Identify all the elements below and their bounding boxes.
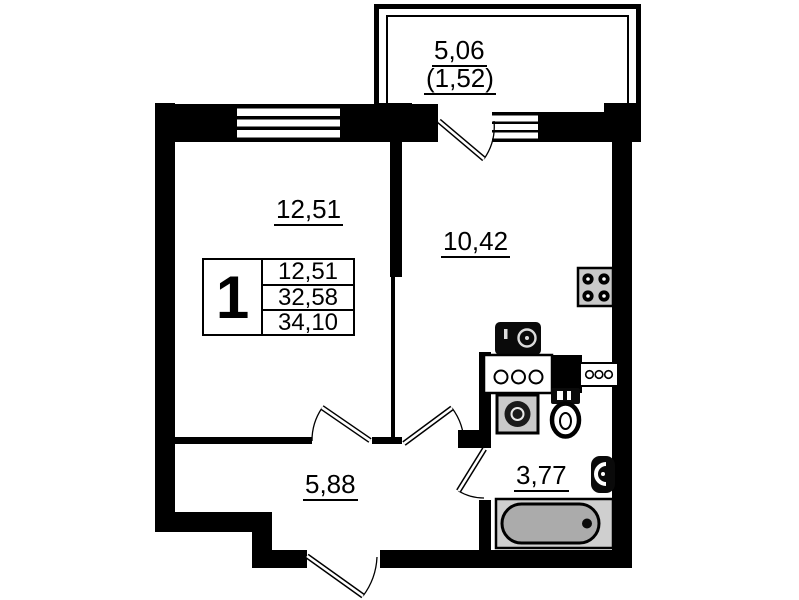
wall-hall-top-b [372, 437, 402, 444]
stove-icon [578, 268, 613, 306]
bathroom-area-label: 3,77 [514, 462, 569, 492]
kitchen-area-label: 10,42 [441, 228, 510, 258]
wall-bath-left-lower [479, 500, 491, 552]
kitchen-sink-icon [495, 322, 541, 355]
wall-left [155, 103, 175, 532]
table-row-usable-area: 32,58 [261, 284, 355, 311]
area-rows: 12,51 32,58 34,10 [261, 258, 355, 336]
door-leaf [322, 408, 370, 441]
wall-kitchen-bath [548, 355, 582, 393]
door-balcony [439, 121, 494, 159]
door-swing-arc [363, 557, 377, 596]
bathtub-icon [496, 499, 613, 548]
balcony-secondary-area-label: (1,52) [424, 65, 496, 95]
door-swing-arc [459, 491, 485, 498]
floor-plan: 5,06 (1,52) 12,51 10,42 5,88 3,77 1 12,5… [0, 0, 799, 600]
door-kitchen [404, 408, 464, 444]
wall-bath-left-upper [479, 352, 491, 448]
wall-bottom-entry-left [252, 550, 307, 568]
wall-hall-top-a [175, 437, 312, 444]
toilet-icon [551, 388, 580, 437]
window-kitchen [492, 112, 538, 142]
balcony-railing-inner [386, 15, 629, 110]
apartment-info-table: 1 12,51 32,58 34,10 [202, 258, 355, 336]
door-swing-arc [312, 408, 322, 441]
door-bathroom [459, 449, 485, 498]
vent-shaft-kitchen [484, 355, 552, 393]
wall-divider-thin [391, 277, 395, 444]
window-living-room [237, 104, 340, 142]
living-room-area-label: 12,51 [274, 196, 343, 226]
wall-top-a [155, 104, 237, 142]
table-row-total-area: 34,10 [261, 309, 355, 336]
wall-right [612, 112, 632, 568]
door-living-room [312, 408, 370, 442]
door-leaf [459, 449, 485, 491]
wall-divider-thick [390, 140, 402, 277]
washing-machine-icon [497, 395, 538, 433]
balcony-block-left [374, 103, 412, 142]
room-count-cell: 1 [202, 258, 263, 336]
wall-bottom-right [380, 550, 632, 568]
hallway-area-label: 5,88 [303, 471, 358, 501]
door-leaf [404, 408, 452, 444]
door-leaf [439, 121, 484, 159]
door-leaf [307, 556, 363, 596]
table-row-living-area: 12,51 [261, 258, 355, 286]
door-entrance [307, 556, 377, 596]
